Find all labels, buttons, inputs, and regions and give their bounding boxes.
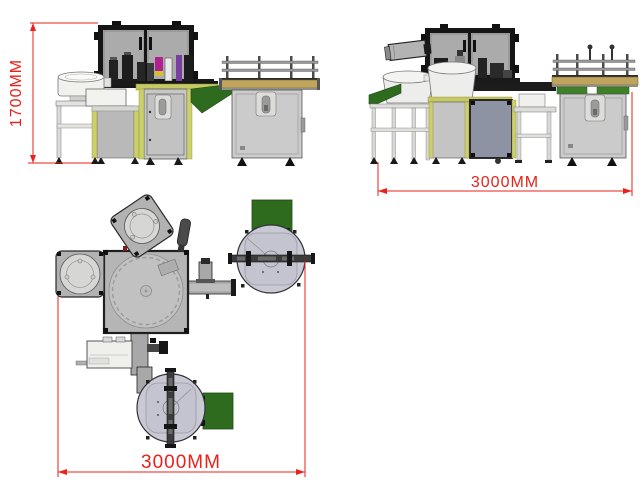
guide-rail: [553, 60, 635, 63]
filler-head-magenta: [155, 57, 163, 71]
front-center-cabinet: [139, 89, 192, 165]
door-handle-icon: [139, 37, 142, 50]
plan-right-conveyor-arm: [187, 258, 236, 299]
side-lower-cabinets: [428, 97, 516, 164]
side-left-stands: [370, 104, 432, 164]
guide-rail: [222, 61, 318, 64]
side-middle-stand: [514, 94, 556, 163]
blue-gray-cabinet: [470, 100, 512, 158]
electrical-box: [86, 89, 126, 106]
plan-bowl-feeder-tilted: [109, 193, 176, 260]
front-left-cabinet: [91, 106, 139, 164]
door-latch-icon: [159, 99, 166, 115]
front-height-label: 1700MM: [8, 59, 25, 127]
door-handle-icon: [473, 40, 476, 52]
door-handle-icon: [149, 37, 152, 50]
front-outfeed-conveyor: [219, 56, 320, 166]
side-elevation-view: 3000MM: [369, 24, 638, 196]
conveyor-belt: [552, 77, 638, 85]
column-purple: [176, 55, 182, 83]
plan-handle-capsule: [176, 218, 192, 252]
side-outfeed-conveyor: [552, 45, 638, 167]
linear-feeder-box: [384, 40, 432, 61]
machine-layout-drawing: 1700MM: [0, 0, 640, 480]
door-handle-icon: [463, 40, 466, 52]
plan-bowl-feeder-left: [56, 251, 104, 297]
side-width-label: 3000MM: [471, 174, 539, 191]
plan-control-box: [76, 337, 132, 368]
side-conveyor-band: [465, 82, 556, 91]
plan-turntable-right: [228, 225, 315, 293]
plan-width-label: 3000MM: [141, 452, 221, 473]
front-elevation-view: 1700MM: [8, 21, 320, 166]
guide-rail: [553, 68, 635, 71]
plan-green-table-bottom: [203, 393, 233, 429]
drawing-canvas: 1700MM: [0, 0, 640, 480]
plan-turntable-bottom: [137, 368, 205, 448]
conveyor-belt: [221, 80, 319, 88]
guide-rail: [222, 69, 318, 72]
plan-view: 3000MM: [56, 193, 315, 477]
